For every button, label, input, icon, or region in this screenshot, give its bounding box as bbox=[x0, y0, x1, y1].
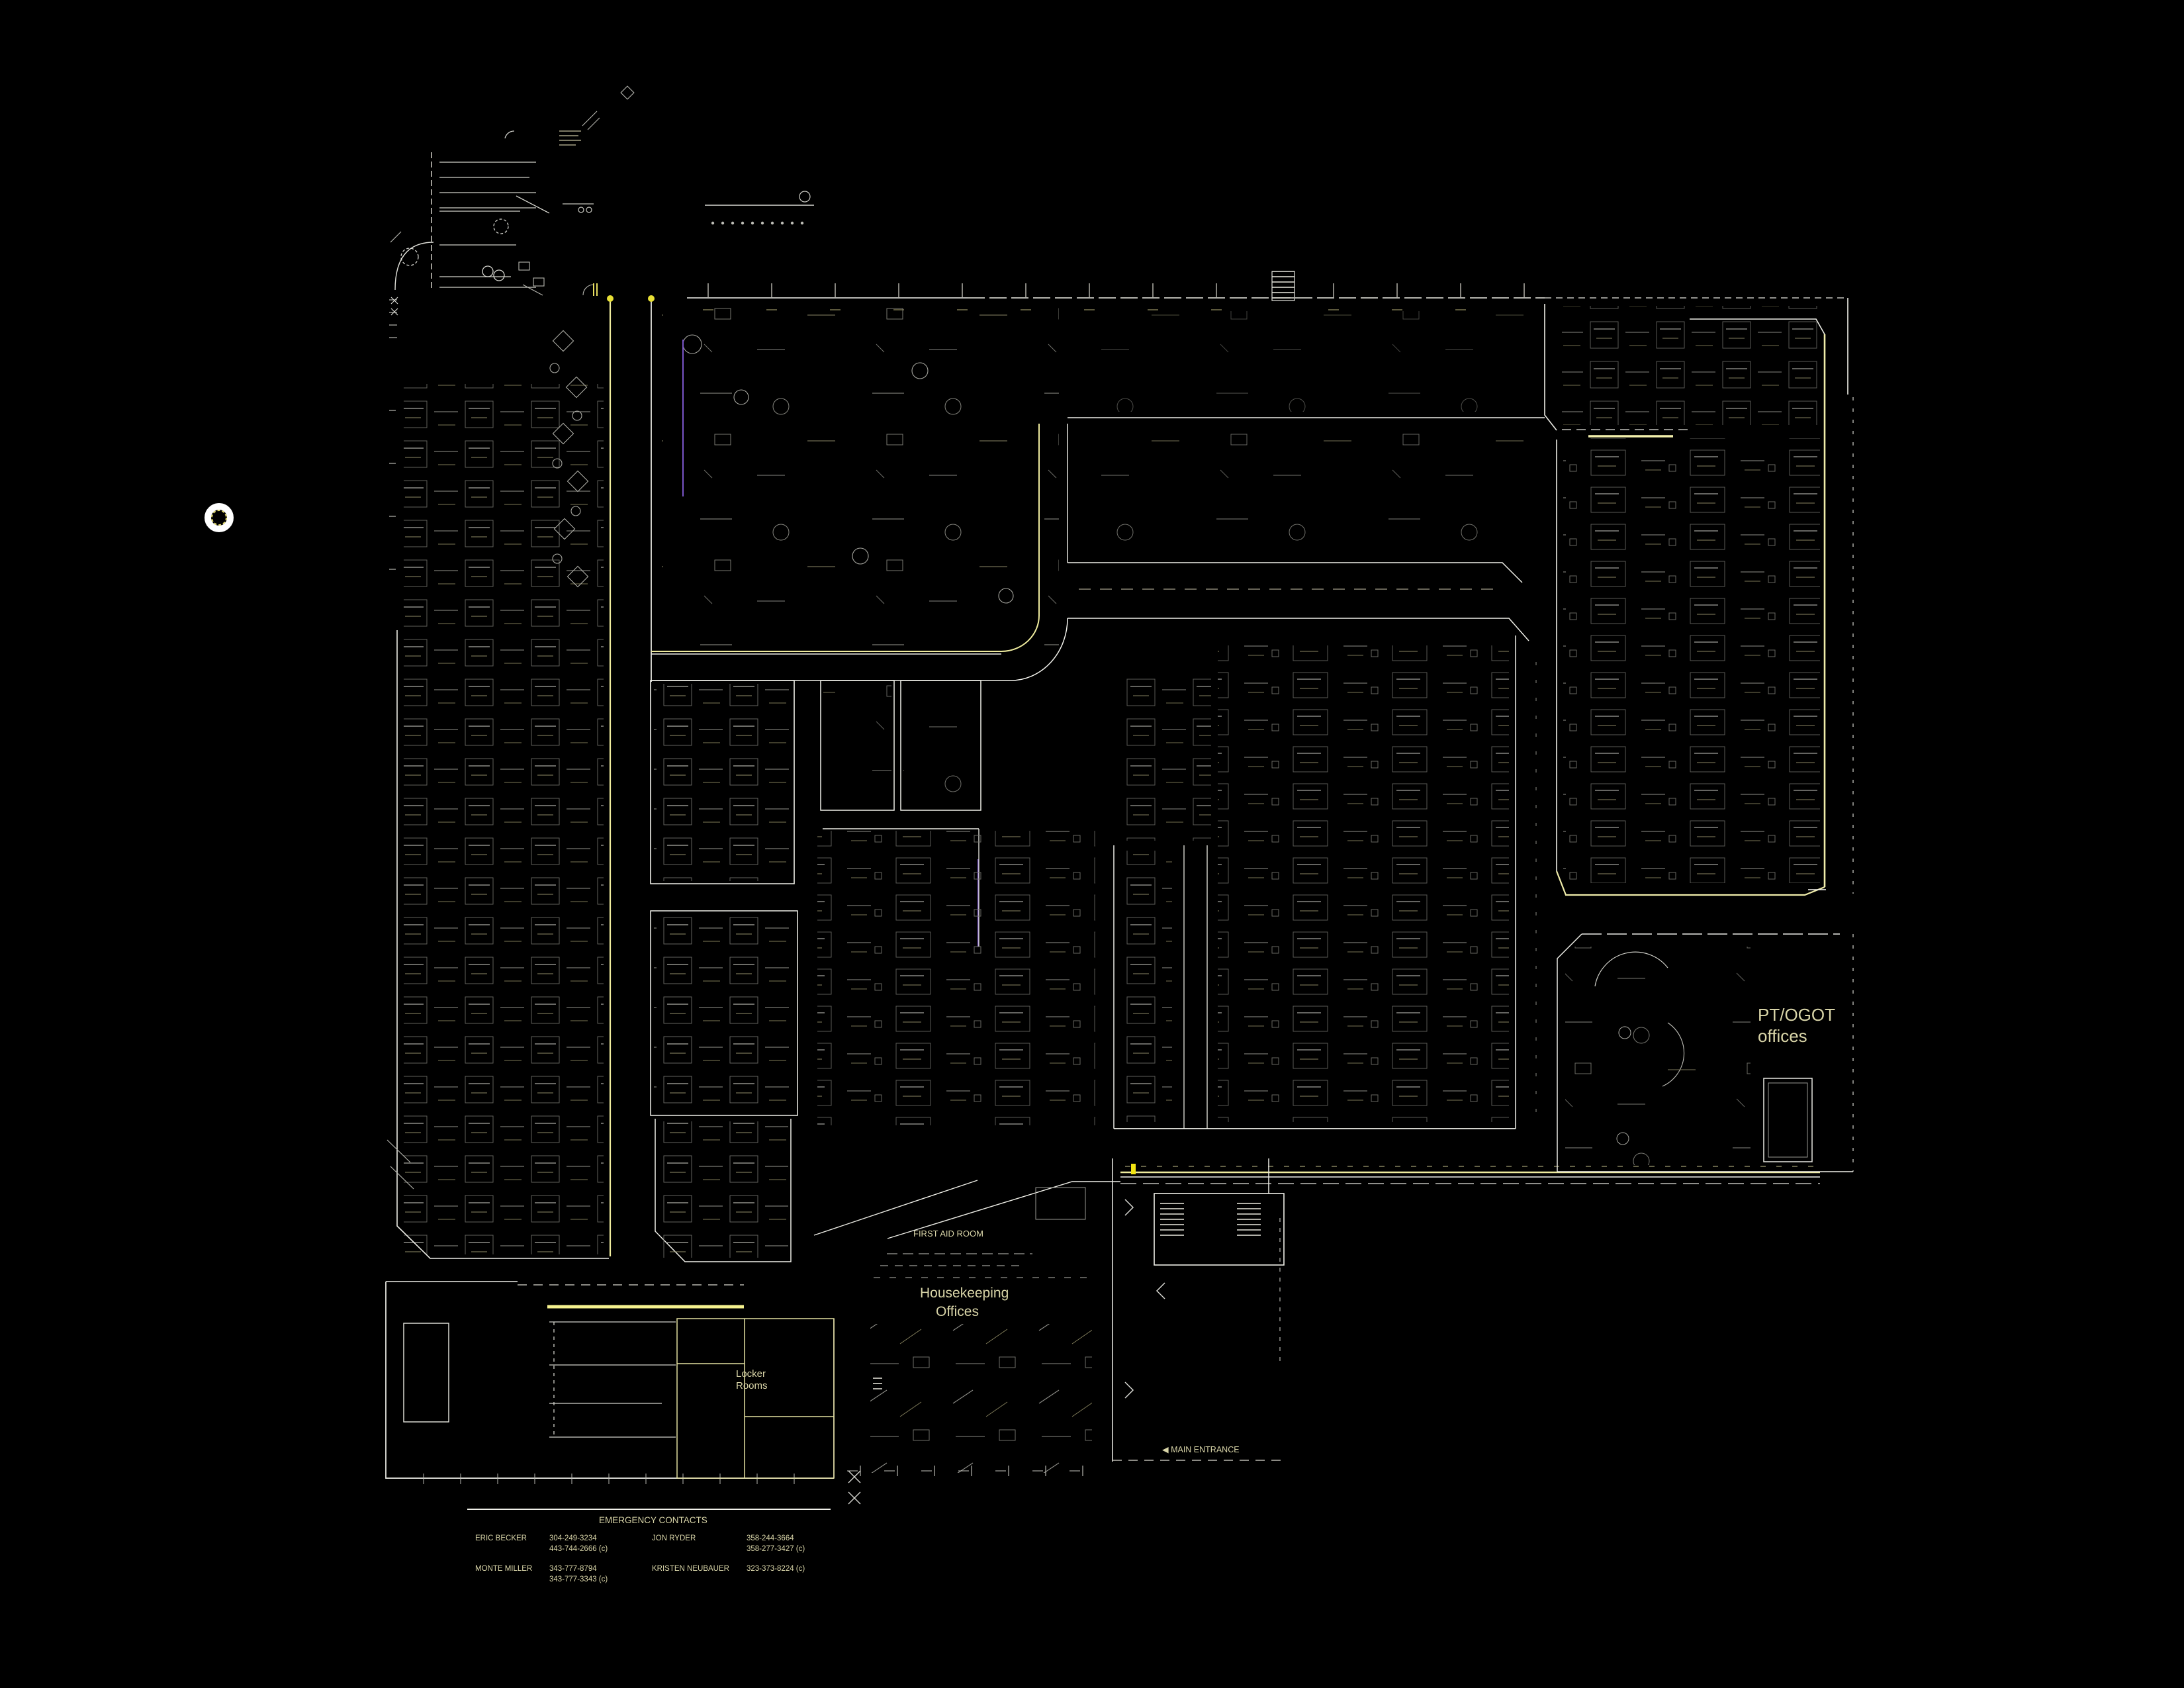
svg-text:KRISTEN NEUBAUER: KRISTEN NEUBAUER bbox=[652, 1565, 729, 1573]
svg-text:343-777-8794: 343-777-8794 bbox=[549, 1565, 597, 1573]
svg-text:443-744-2666 (c): 443-744-2666 (c) bbox=[549, 1545, 608, 1553]
svg-text:offices: offices bbox=[1758, 1026, 1807, 1046]
svg-text:Housekeeping: Housekeeping bbox=[920, 1286, 1009, 1301]
svg-text:MONTE MILLER: MONTE MILLER bbox=[475, 1565, 532, 1573]
svg-text:323-373-8224 (c): 323-373-8224 (c) bbox=[747, 1565, 805, 1573]
svg-text:Locker: Locker bbox=[736, 1368, 766, 1380]
svg-text:358-244-3664: 358-244-3664 bbox=[747, 1534, 794, 1542]
svg-text:Rooms: Rooms bbox=[736, 1380, 768, 1391]
svg-text:JON RYDER: JON RYDER bbox=[652, 1534, 696, 1542]
svg-text:PT/OGOT: PT/OGOT bbox=[1758, 1005, 1835, 1025]
svg-text:343-777-3343 (c): 343-777-3343 (c) bbox=[549, 1575, 608, 1583]
svg-text:304-249-3234: 304-249-3234 bbox=[549, 1534, 597, 1542]
svg-text:358-277-3427 (c): 358-277-3427 (c) bbox=[747, 1545, 805, 1553]
svg-text:FIRST AID ROOM: FIRST AID ROOM bbox=[913, 1229, 983, 1239]
svg-text:Offices: Offices bbox=[936, 1304, 979, 1319]
svg-text:EMERGENCY CONTACTS: EMERGENCY CONTACTS bbox=[599, 1515, 707, 1525]
svg-text:◀ MAIN ENTRANCE: ◀ MAIN ENTRANCE bbox=[1162, 1445, 1240, 1454]
svg-text:ERIC BECKER: ERIC BECKER bbox=[475, 1534, 527, 1542]
